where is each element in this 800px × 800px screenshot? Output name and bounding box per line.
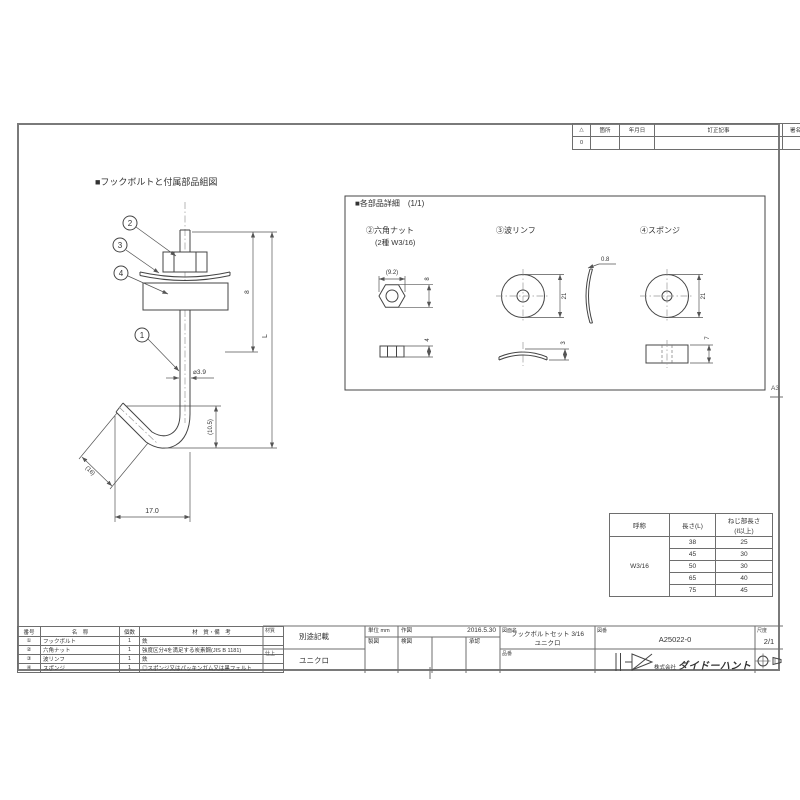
dim-stack: 8	[244, 290, 251, 294]
dim-nut-height: 4	[425, 338, 431, 342]
part-no-label: 品番	[502, 650, 512, 657]
parts-cell: 鉄	[140, 655, 284, 664]
dim-washer-height: 3	[561, 341, 567, 345]
assembly-drawing: 2 3 4 1 ⌀3.9 8 L	[79, 202, 277, 522]
drawing-name-line2: ユニクロ	[500, 640, 595, 647]
drawing-sheet: 2 3 4 1 ⌀3.9 8 L	[0, 0, 800, 800]
dim-rod-dia: ⌀3.9	[193, 369, 206, 376]
drawn-label: 作図	[401, 628, 412, 634]
parts-col-material: 材 質・備 考	[140, 627, 284, 637]
check-label: 検図	[401, 639, 412, 645]
revision-table: △ 箇所 年月日 訂正記事 署名 0	[572, 123, 800, 150]
dim-hook-length: (16)	[84, 465, 96, 477]
drawn-date: 2016.5.30	[428, 627, 496, 634]
dim-nut-across: (9.2)	[386, 270, 398, 276]
company-logo-icon	[616, 653, 652, 671]
company-name-block: 株式会社ダイドーハント	[654, 656, 754, 674]
spec-col-length: 長さ(L)	[670, 514, 716, 537]
finish-label: 仕上	[265, 650, 275, 657]
dim-washer-dia: 21	[562, 292, 568, 299]
material-value: 別途記載	[263, 633, 365, 641]
spec-col-name: 呼称	[610, 514, 670, 537]
scale-value: 2/1	[755, 638, 783, 646]
parts-cell: ④	[18, 664, 41, 673]
spec-cell: 45	[716, 585, 773, 597]
spec-cell: 45	[670, 549, 716, 561]
hook-centerline	[119, 407, 158, 444]
callout-nut: 2	[128, 219, 133, 228]
parts-cell: 六角ナット	[41, 646, 120, 655]
spec-cell: 30	[716, 549, 773, 561]
drawing-linework: 2 3 4 1 ⌀3.9 8 L	[0, 0, 800, 800]
revision-row: 0	[573, 137, 800, 150]
parts-row: ③ 波リンフ 1 鉄	[18, 655, 284, 664]
parts-cell: 1	[120, 655, 140, 664]
dim-overall: L	[262, 334, 269, 338]
projection-symbol-icon	[756, 654, 782, 669]
spec-cell: 25	[716, 537, 773, 549]
spec-table: 呼称 長さ(L) ねじ部長さ (ℓ以上) W3/16 38 25 4530 50…	[609, 513, 773, 597]
parts-row: ② 六角ナット 1 強度区分4を満足する炭素鋼(JIS B 1181)	[18, 646, 284, 655]
parts-cell: 波リンフ	[41, 655, 120, 664]
spec-cell: 75	[670, 585, 716, 597]
detail-nut-sub: (2種 W3/16)	[375, 239, 415, 247]
spec-cell: 38	[670, 537, 716, 549]
detail-nut: (9.2) 8 4	[379, 270, 433, 357]
parts-cell: 1	[120, 646, 140, 655]
parts-cell: 強度区分4を満足する炭素鋼(JIS B 1181)	[140, 646, 284, 655]
dim-sponge-height: 7	[705, 336, 711, 340]
callout-sponge: 4	[119, 269, 124, 278]
detail-nut-label: ②六角ナット	[366, 227, 414, 236]
callout-bolt: 1	[140, 331, 145, 340]
dim-hook-width: 17.0	[145, 508, 159, 515]
parts-row: ④ スポンジ 1 ◎スポンジ又はパッキンガム又は黒フェルト	[18, 664, 284, 673]
spec-name: W3/16	[610, 537, 670, 597]
spec-cell: 65	[670, 573, 716, 585]
parts-cell: ◎スポンジ又はパッキンガム又は黒フェルト	[140, 664, 284, 673]
company-name: ダイドーハント	[678, 661, 751, 672]
dim-sponge-dia: 21	[701, 292, 707, 299]
parts-col-name: 名 称	[41, 627, 120, 637]
dwg-no: A25022-0	[595, 636, 755, 644]
scale-label: 尺度	[757, 627, 767, 634]
spec-cell: 40	[716, 573, 773, 585]
detail-sponge: 21 7	[640, 269, 713, 368]
parts-cell: ②	[18, 646, 41, 655]
dwg-no-label: 図番	[597, 627, 607, 634]
detail-sponge-label: ④スポンジ	[640, 227, 680, 236]
rev-col-sign: 署名	[783, 124, 800, 137]
parts-col-no: 番号	[18, 627, 41, 637]
parts-cell: ③	[18, 655, 41, 664]
callout-washer: 3	[118, 241, 123, 250]
parts-row: ① フックボルト 1 鉄	[18, 637, 284, 646]
hook-body	[116, 310, 190, 448]
dim-washer-thickness: 0.8	[601, 257, 610, 263]
draft-label: 製図	[368, 639, 379, 645]
dim-nut-dia: 8	[425, 277, 431, 281]
finish-value: ユニクロ	[263, 657, 365, 665]
details-title: ■各部品詳細 (1/1)	[355, 200, 424, 209]
assembly-dimensions: ⌀3.9 8 L (10.5) (16) 17.0	[79, 232, 277, 522]
parts-cell: ①	[18, 637, 41, 646]
unit-text: 単位 mm	[368, 628, 390, 634]
parts-cell: 鉄	[140, 637, 284, 646]
parts-cell: スポンジ	[41, 664, 120, 673]
detail-washer: 21 3 0.8	[496, 257, 616, 366]
drawing-name-line1: フックボルトセット 3/16	[500, 631, 595, 638]
detail-washer-label: ③波リンフ	[496, 227, 536, 236]
spec-row: W3/16 38 25	[610, 537, 773, 549]
spec-cell: 50	[670, 561, 716, 573]
approve-label: 承認	[469, 639, 480, 645]
rev-mark: 0	[573, 137, 591, 150]
sheet-size-label: A3	[771, 385, 779, 392]
parts-cell: 1	[120, 664, 140, 673]
rev-col-note: 訂正記事	[655, 124, 783, 137]
rev-col-mark: △	[573, 124, 591, 137]
rev-col-date: 年月日	[620, 124, 655, 137]
parts-cell: フックボルト	[41, 637, 120, 646]
parts-col-qty: 個数	[120, 627, 140, 637]
company-prefix: 株式会社	[654, 665, 676, 671]
rev-col-place: 箇所	[591, 124, 620, 137]
hex-nut-side	[163, 252, 207, 272]
assembly-title: ■フックボルトと付属部品組図	[95, 177, 217, 188]
dim-hook-depth: (10.5)	[208, 419, 214, 435]
spec-col-thread: ねじ部長さ (ℓ以上)	[716, 514, 773, 537]
spec-cell: 30	[716, 561, 773, 573]
sponge-side	[143, 283, 228, 310]
parts-list-table: 番号 名 称 個数 材 質・備 考 ① フックボルト 1 鉄 ② 六角ナット 1…	[17, 626, 284, 673]
parts-cell: 1	[120, 637, 140, 646]
